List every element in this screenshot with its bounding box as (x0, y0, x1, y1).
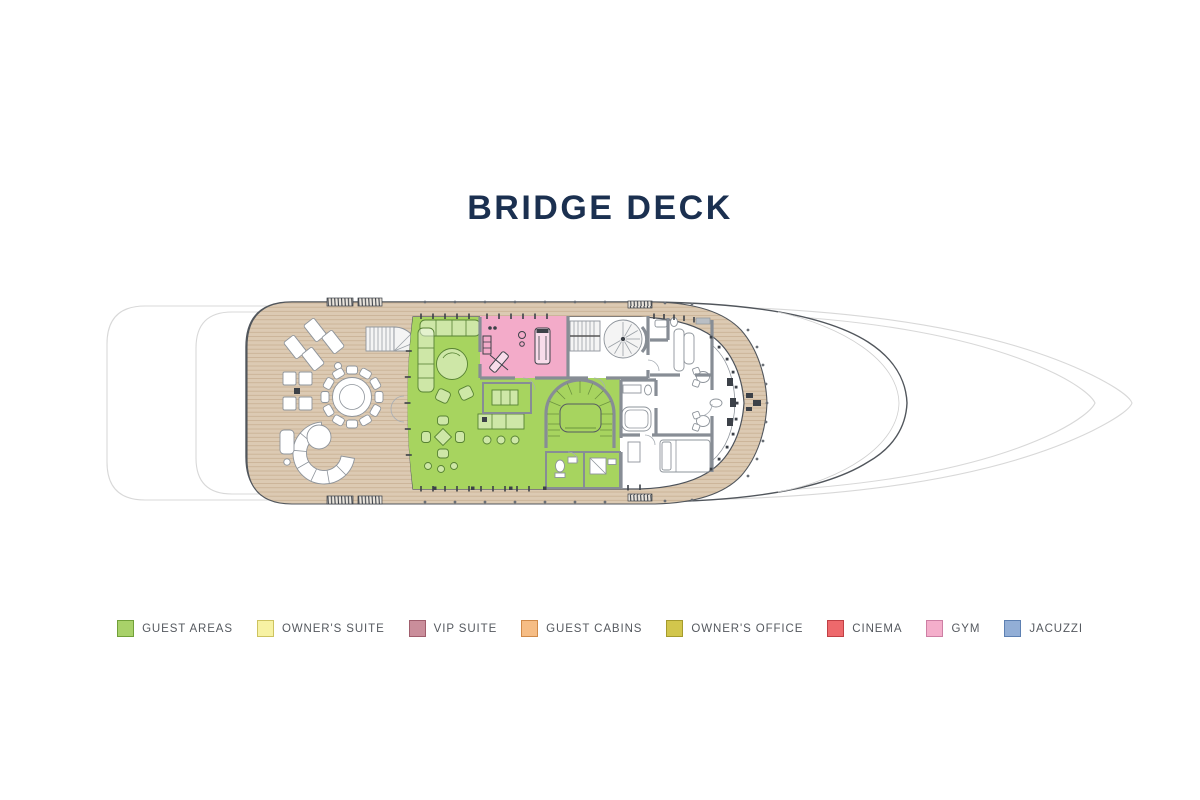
legend-item-owners-suite: OWNER'S SUITE (257, 620, 385, 637)
legend-item-guest-cabins: GUEST CABINS (521, 620, 642, 637)
legend-label: CINEMA (852, 623, 902, 635)
owners-office-swatch-icon (666, 620, 683, 637)
gym-swatch-icon (926, 620, 943, 637)
legend-item-gym: GYM (926, 620, 980, 637)
cinema-swatch-icon (827, 620, 844, 637)
legend-label: JACUZZI (1029, 623, 1083, 635)
legend-item-vip-suite: VIP SUITE (409, 620, 498, 637)
legend-label: GYM (951, 623, 980, 635)
legend-label: VIP SUITE (434, 623, 498, 635)
legend-label: OWNER'S OFFICE (691, 623, 803, 635)
legend-label: GUEST CABINS (546, 623, 642, 635)
legend-item-cinema: CINEMA (827, 620, 902, 637)
deck-plan (0, 0, 1200, 800)
jacuzzi-swatch-icon (1004, 620, 1021, 637)
page: BRIDGE DECK (0, 0, 1200, 800)
legend-label: GUEST AREAS (142, 623, 233, 635)
vip-suite-swatch-icon (409, 620, 426, 637)
legend-item-guest-areas: GUEST AREAS (117, 620, 233, 637)
guest-areas-swatch-icon (117, 620, 134, 637)
legend-item-owners-office: OWNER'S OFFICE (666, 620, 803, 637)
guest-cabins-swatch-icon (521, 620, 538, 637)
owners-suite-swatch-icon (257, 620, 274, 637)
legend: GUEST AREAS OWNER'S SUITE VIP SUITE GUES… (0, 620, 1200, 637)
legend-item-jacuzzi: JACUZZI (1004, 620, 1083, 637)
legend-label: OWNER'S SUITE (282, 623, 385, 635)
